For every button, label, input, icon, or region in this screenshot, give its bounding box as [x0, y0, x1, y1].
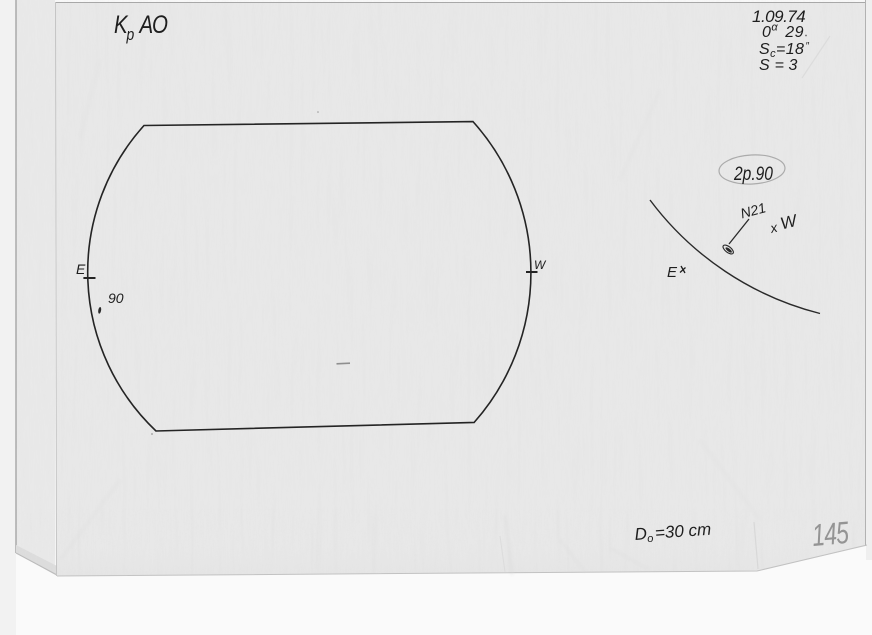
svg-text:E: E	[76, 261, 86, 277]
svg-text:90: 90	[108, 290, 124, 306]
svg-text:E: E	[667, 264, 678, 281]
svg-text:S= 3: S= 3	[759, 57, 797, 74]
svg-text:W: W	[534, 258, 547, 272]
svg-text:2p.90: 2p.90	[733, 163, 773, 185]
svg-text:145: 145	[811, 514, 851, 552]
